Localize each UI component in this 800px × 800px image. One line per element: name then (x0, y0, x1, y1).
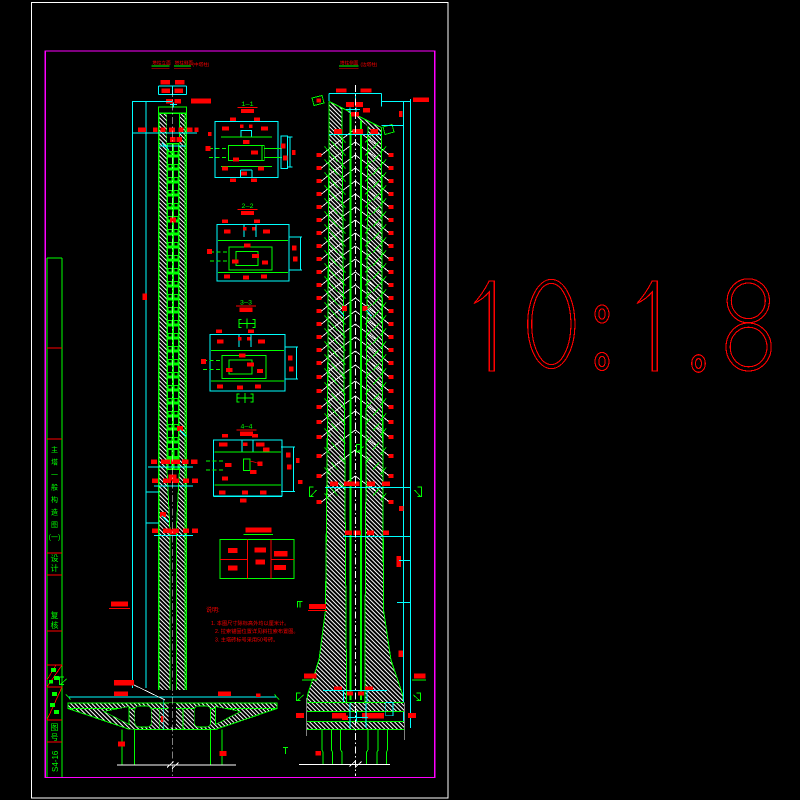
svg-text:主: 主 (51, 445, 58, 454)
svg-text:造: 造 (51, 508, 58, 517)
svg-text:塔柱立面: 塔柱立面 (152, 59, 171, 66)
svg-text:3. 主塔砖标号采用50号砖。: 3. 主塔砖标号采用50号砖。 (215, 636, 278, 644)
svg-text:号: 号 (51, 733, 59, 742)
svg-text:复: 复 (51, 610, 59, 620)
svg-text:图: 图 (51, 521, 58, 529)
svg-text:(边塔柱): (边塔柱) (361, 61, 378, 68)
svg-text:计: 计 (51, 563, 59, 573)
svg-text:构: 构 (51, 495, 58, 504)
svg-text:2. 拉索锚固位置详见斜拉索布置图。: 2. 拉索锚固位置详见斜拉索布置图。 (215, 627, 299, 635)
svg-text:(中塔柱): (中塔柱) (193, 61, 210, 68)
svg-text:塔: 塔 (51, 458, 58, 467)
svg-text:塔柱侧面: 塔柱侧面 (175, 59, 194, 66)
svg-text:设: 设 (51, 553, 59, 563)
svg-text:塔柱侧面: 塔柱侧面 (340, 59, 359, 66)
svg-text:S4-16: S4-16 (51, 750, 60, 772)
svg-text:1. 本图尺寸除标高外均以厘米计。: 1. 本图尺寸除标高外均以厘米计。 (211, 619, 289, 627)
svg-text:图: 图 (51, 723, 59, 732)
svg-text:(一): (一) (49, 535, 61, 542)
svg-text:核: 核 (51, 620, 59, 630)
svg-text:一: 一 (51, 472, 58, 479)
svg-text:说明:: 说明: (206, 606, 220, 614)
svg-text:般: 般 (51, 483, 58, 492)
